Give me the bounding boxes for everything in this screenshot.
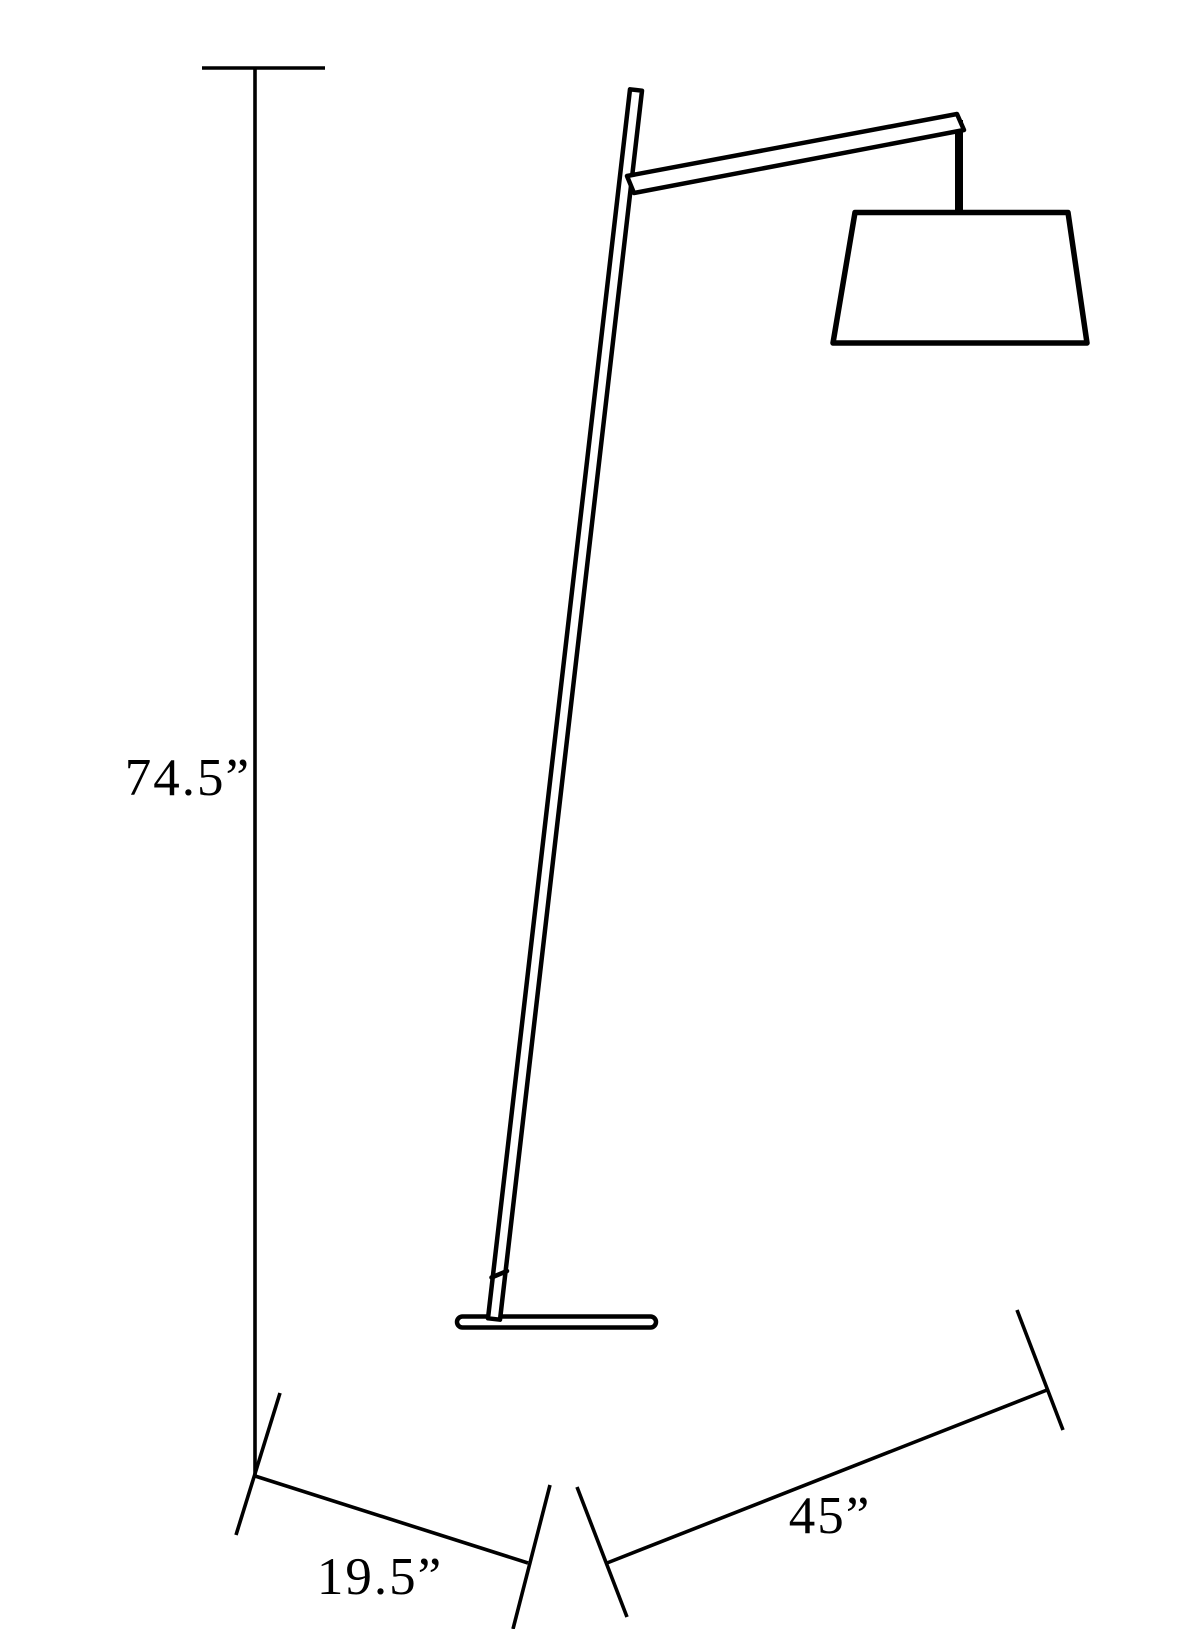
floor-lamp-drawing <box>457 89 1087 1327</box>
height-depth-corner-tick <box>236 1393 280 1535</box>
reach-dimension-start-tick <box>577 1487 627 1617</box>
lamp-shade <box>833 213 1087 344</box>
lamp-dimension-diagram: 74.5” 19.5” 45” <box>0 0 1201 1629</box>
depth-dimension-label: 19.5” <box>317 1548 443 1606</box>
reach-dimension-end-tick <box>1017 1310 1063 1430</box>
reach-dimension-label: 45” <box>789 1487 872 1545</box>
dimension-labels: 74.5” 19.5” 45” <box>125 749 872 1606</box>
depth-dimension-end-tick <box>513 1485 550 1629</box>
diagram-canvas: 74.5” 19.5” 45” <box>0 0 1201 1629</box>
height-dimension-label: 74.5” <box>125 749 251 807</box>
lamp-arm <box>627 114 964 193</box>
lamp-pole <box>488 89 642 1319</box>
